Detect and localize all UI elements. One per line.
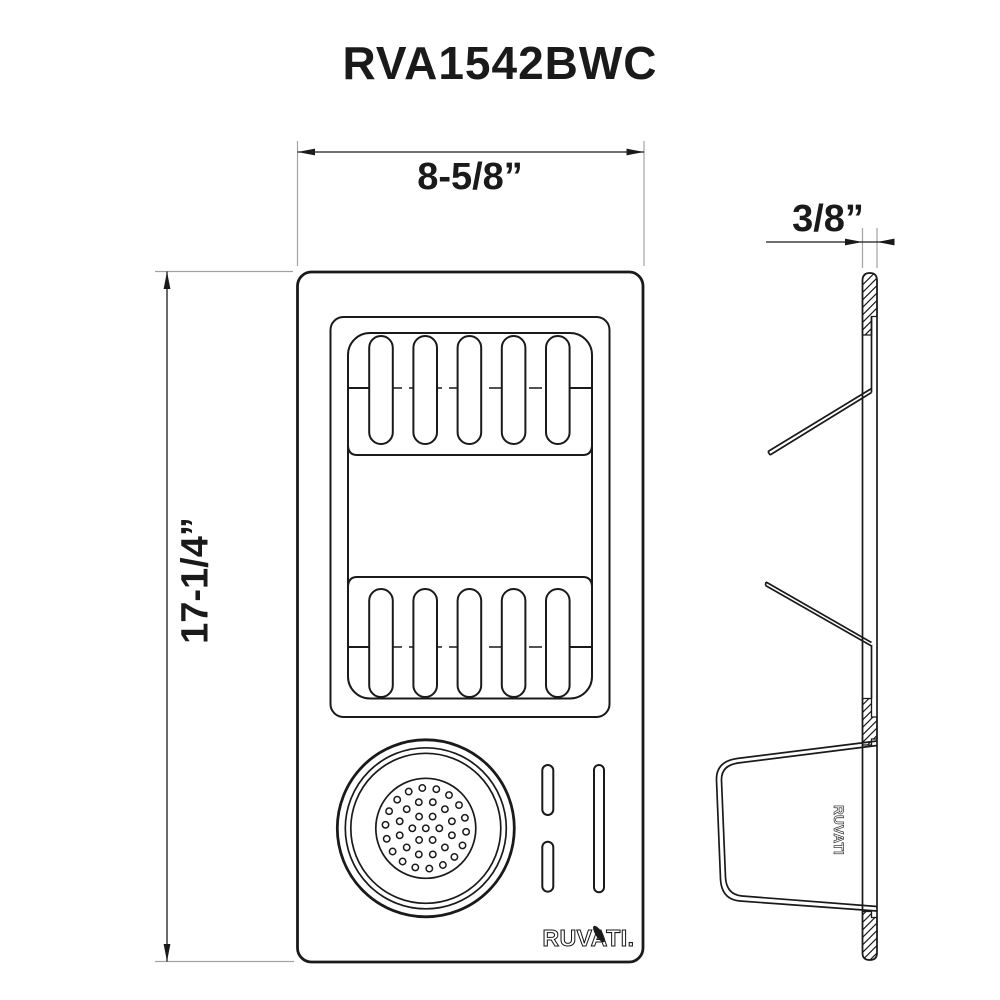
drain-hole — [451, 854, 457, 860]
arrowhead — [298, 149, 316, 156]
tray-slot — [369, 336, 393, 444]
side-wall-outline — [863, 273, 878, 960]
drain-hole — [430, 799, 436, 805]
tray-slot — [502, 589, 526, 697]
front-view: RUVATI. — [298, 272, 644, 962]
drain-hole — [406, 788, 412, 794]
drain-hole — [429, 837, 435, 843]
arrowhead — [627, 149, 645, 156]
drain-hole — [404, 844, 410, 850]
drain-slot-short — [542, 842, 553, 892]
drain-hole — [416, 799, 422, 805]
upper-tray-bottom-edge — [348, 446, 592, 455]
tray-slot — [458, 589, 482, 697]
technical-drawing: RUVATI. RUVATI — [0, 0, 1000, 1000]
arrowhead — [164, 944, 171, 962]
cross-section-hatch-top — [863, 273, 878, 335]
drain-hole — [416, 813, 422, 819]
front-logo-text: RUVATI. — [542, 925, 634, 951]
drain-hole — [463, 829, 469, 835]
front-logo: RUVATI. — [542, 924, 634, 951]
upper-tray — [349, 336, 592, 444]
tray-slot — [413, 336, 437, 444]
cross-section-hatch-bottom — [863, 912, 878, 961]
drain-hole — [416, 851, 422, 857]
drain-hole — [384, 836, 390, 842]
drawing-page: RVA1542BWC — [0, 0, 1000, 1000]
drain-hole — [456, 802, 462, 808]
drain-hole — [440, 862, 446, 868]
basket-profile-inner — [721, 746, 877, 907]
tray-slot — [546, 336, 570, 444]
tray-slot — [546, 589, 570, 697]
drain-hole — [462, 815, 468, 821]
drain-hole — [433, 786, 439, 792]
tray-slot — [458, 336, 482, 444]
drain-hole — [436, 825, 442, 831]
lower-tray — [349, 589, 592, 697]
thickness-dimension-label: 3/8” — [768, 198, 888, 241]
drain-hole — [386, 808, 392, 814]
upper-tray-profile — [768, 389, 872, 456]
drain-hole — [459, 842, 465, 848]
colander — [337, 740, 514, 917]
drain-hole — [397, 818, 403, 824]
drain-hole — [423, 825, 429, 831]
drain-hole — [382, 822, 388, 828]
drain-slots — [542, 765, 604, 892]
drain-hole — [449, 818, 455, 824]
width-dimension-label: 8-5/8” — [370, 156, 570, 199]
height-dimension-label: 17-1/4” — [175, 481, 218, 681]
drain-hole — [409, 825, 415, 831]
drain-hole — [412, 864, 418, 870]
drain-hole — [449, 832, 455, 838]
drain-hole — [429, 813, 435, 819]
lower-tray-profile — [766, 582, 872, 646]
drain-holes — [382, 785, 469, 872]
lower-tray-top-edge — [348, 577, 592, 586]
side-view: RUVATI — [716, 273, 877, 960]
drain-hole — [426, 865, 432, 871]
drain-hole — [442, 806, 448, 812]
drain-hole — [419, 785, 425, 791]
side-logo: RUVATI — [831, 805, 846, 855]
basket-profile-outer — [716, 741, 877, 911]
drain-hole — [442, 844, 448, 850]
drain-hole — [399, 858, 405, 864]
cross-section-hatch-middle — [863, 699, 878, 746]
drain-slot-short — [542, 765, 553, 815]
side-logo-text: RUVATI — [831, 805, 846, 855]
drain-hole — [416, 837, 422, 843]
arrowhead — [164, 272, 171, 290]
tray-slot — [369, 589, 393, 697]
drain-hole — [397, 832, 403, 838]
drain-hole — [389, 848, 395, 854]
drain-hole — [430, 851, 436, 857]
drain-slot-long — [594, 765, 604, 892]
drain-hole — [394, 797, 400, 803]
drain-hole — [446, 792, 452, 798]
drain-hole — [404, 806, 410, 812]
tray-slot — [502, 336, 526, 444]
tray-slot — [413, 589, 437, 697]
